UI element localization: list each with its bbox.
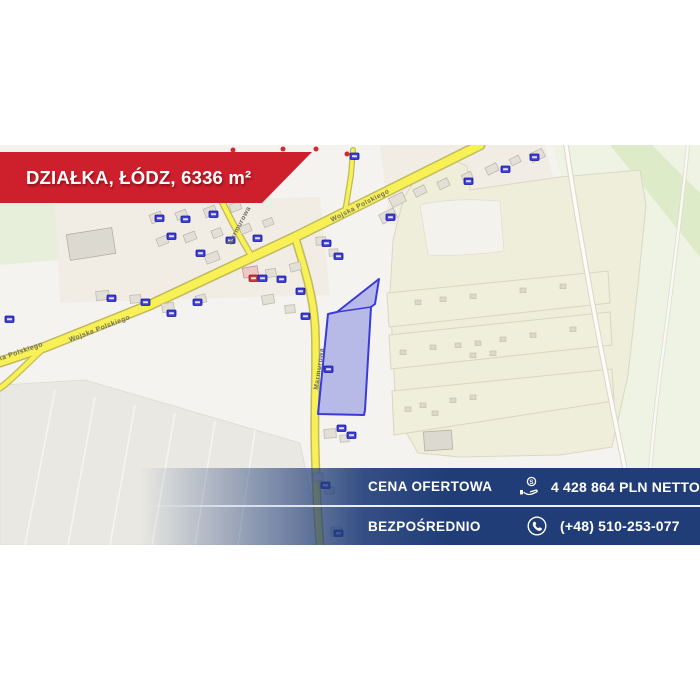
offer-panel: CENA OFERTOWA S 4 428 864 PLN NETTO BEZP… — [140, 468, 700, 545]
phone-number: (+48) 510-253-077 — [560, 518, 680, 534]
coins-in-hand-icon: S — [513, 475, 545, 499]
listing-title: DZIAŁKA, ŁÓDZ, 6336 m² — [0, 167, 251, 189]
svg-text:S: S — [529, 478, 533, 485]
plot-address-plate — [324, 366, 333, 373]
phone-icon — [520, 515, 554, 537]
offer-row-price: CENA OFERTOWA S 4 428 864 PLN NETTO — [140, 468, 700, 505]
price-label: CENA OFERTOWA — [368, 479, 513, 494]
contact-label: BEZPOŚREDNIO — [368, 519, 520, 534]
price-value: 4 428 864 PLN NETTO — [551, 479, 700, 495]
offer-row-contact: BEZPOŚREDNIO (+48) 510-253-077 — [140, 507, 700, 545]
listing-flyer: Wojska Polskiego Wojska Polskiego Wojska… — [0, 0, 700, 700]
title-banner: DZIAŁKA, ŁÓDZ, 6336 m² — [0, 152, 312, 203]
